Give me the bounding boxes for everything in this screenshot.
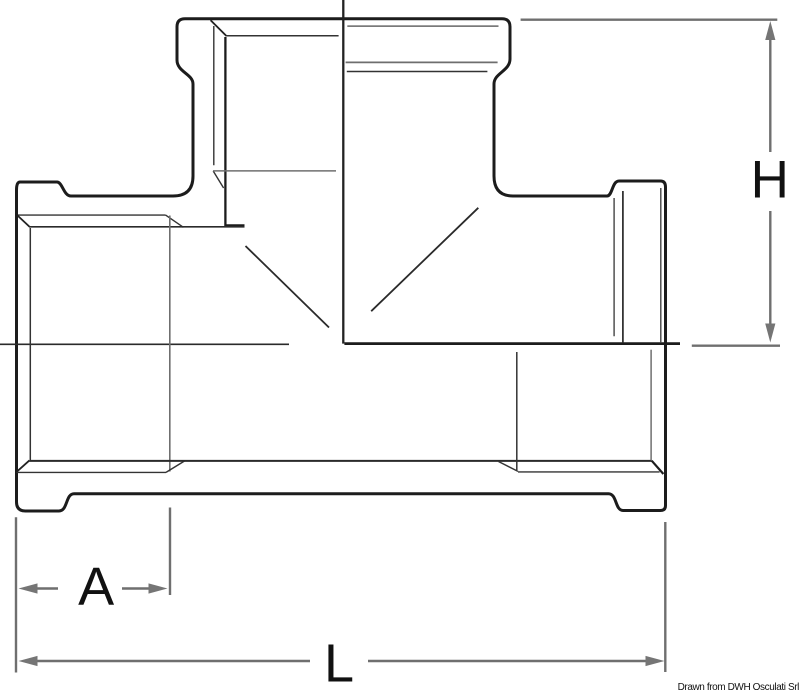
svg-text:L: L [324,634,354,693]
svg-text:Drawn from DWH Osculati Srl: Drawn from DWH Osculati Srl [678,682,800,693]
svg-text:H: H [751,151,789,210]
svg-text:A: A [78,557,114,617]
